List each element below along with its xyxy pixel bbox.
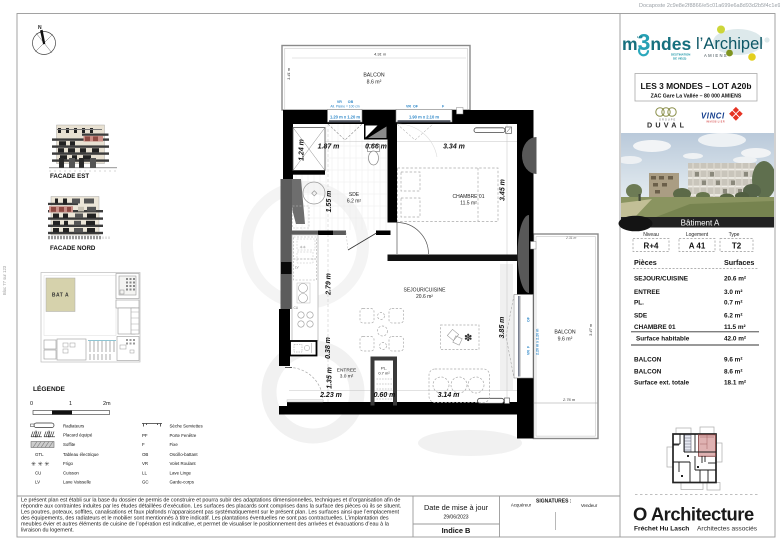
svg-text:N: N [38,25,42,31]
svg-text:20.6 m²: 20.6 m² [724,276,746,283]
svg-text:1.20 m x 1.20 m: 1.20 m x 1.20 m [330,115,360,120]
svg-text:3.34 m: 3.34 m [443,144,465,151]
svg-text:CHAMBRE 01: CHAMBRE 01 [634,324,676,331]
svg-text:9.6 m²: 9.6 m² [558,337,573,343]
svg-text:0: 0 [30,401,33,407]
svg-text:LL: LL [142,471,147,476]
svg-text:FACADE EST: FACADE EST [50,173,89,180]
svg-text:meubles évier et autres élémen: meubles évier et autres éléments de cuis… [21,522,390,528]
svg-text:3.0 m²: 3.0 m² [340,374,354,380]
svg-text:BALCON: BALCON [363,73,385,79]
svg-text:T2: T2 [732,242,742,251]
svg-text:SDE: SDE [349,192,360,198]
svg-text:2.31 m: 2.31 m [565,236,577,240]
svg-text:AMIENS: AMIENS [704,53,728,58]
svg-text:0.60 m: 0.60 m [374,392,396,399]
svg-text:3.45 m: 3.45 m [500,179,507,201]
svg-text:Radiateurs: Radiateurs [63,424,85,429]
svg-text:Oscillo-battant: Oscillo-battant [170,452,199,457]
svg-text:Type: Type [729,232,740,238]
svg-text:BALCON: BALCON [554,330,576,336]
svg-text:3.14 m: 3.14 m [438,392,460,399]
svg-text:VR F: VR F [527,345,531,355]
svg-text:ZAC Gare La Vallée – 80 000 AM: ZAC Gare La Vallée – 80 000 AMIENS [651,94,742,100]
svg-text:Volet Roulant: Volet Roulant [170,461,197,466]
svg-text:A 41: A 41 [689,242,706,251]
svg-text:Lave Linge: Lave Linge [170,471,192,476]
svg-text:VR OF: VR OF [406,105,419,109]
svg-text:Vendeur: Vendeur [581,503,598,508]
svg-text:LES 3 MONDES – LOT A20b: LES 3 MONDES – LOT A20b [641,81,752,91]
svg-text:1.24 m: 1.24 m [299,139,306,161]
svg-text:VINCI: VINCI [701,112,725,121]
svg-text:DUVAL: DUVAL [647,121,687,130]
svg-text:VR: VR [142,461,148,466]
svg-text:Porte Fenêtre: Porte Fenêtre [170,433,197,438]
svg-text:6.2 m²: 6.2 m² [347,199,362,205]
svg-text:20.6 m²: 20.6 m² [416,294,433,300]
svg-text:Surface habitable: Surface habitable [636,336,690,343]
svg-text:Soffite: Soffite [63,442,76,447]
svg-text:0.7 m²: 0.7 m² [724,300,742,307]
svg-text:Cuisson: Cuisson [63,471,79,476]
svg-text:ENTREE: ENTREE [337,368,356,374]
svg-text:0.66 m: 0.66 m [365,144,387,151]
svg-text:ENTREE: ENTREE [634,289,661,296]
svg-text:Pièces: Pièces [634,258,657,267]
svg-text:OF: OF [527,316,531,322]
svg-text:Bâtiment A: Bâtiment A [681,219,720,228]
svg-text:IMMOBILIER: IMMOBILIER [706,121,725,124]
svg-text:FACADE NORD: FACADE NORD [50,245,96,252]
svg-text:✳ ✳ ✳: ✳ ✳ ✳ [31,461,49,468]
svg-text:0.38 m: 0.38 m [325,337,332,359]
svg-text:Fixe: Fixe [170,442,179,447]
svg-text:Indice B: Indice B [442,526,471,535]
svg-text:CHAMBRE 01: CHAMBRE 01 [453,194,485,200]
svg-text:2.20 m x 2.20 m: 2.20 m x 2.20 m [536,329,540,355]
svg-text:✳✳: ✳✳ [300,246,307,250]
svg-text:SEJOUR/CUISINE: SEJOUR/CUISINE [634,276,689,283]
svg-text:Docaposte 2c9e8e2f8866/e5c01a6: Docaposte 2c9e8e2f8866/e5c01a699e6a8d93d… [639,3,780,9]
svg-text:BAT A: BAT A [52,293,69,299]
svg-text:0.7 m²: 0.7 m² [378,371,390,376]
svg-text:8.6 m²: 8.6 m² [724,369,742,376]
svg-text:O Architecture: O Architecture [633,504,754,525]
svg-text:LÉGENDE: LÉGENDE [33,384,65,393]
svg-text:CU: CU [294,306,299,310]
svg-text:6.2 m²: 6.2 m² [724,313,742,320]
svg-text:All. Pleine = 100 cm: All. Pleine = 100 cm [330,105,359,109]
svg-text:Architectes associés: Architectes associés [697,526,758,533]
svg-text:R+4: R+4 [644,242,659,251]
svg-text:1.41 m: 1.41 m [286,67,291,80]
svg-text:DE VIE(S): DE VIE(S) [673,57,686,61]
svg-text:SEJOUR/CUISINE: SEJOUR/CUISINE [404,288,447,294]
svg-text:LV: LV [35,480,40,485]
svg-text:✽: ✽ [464,333,472,344]
svg-text:OB: OB [142,452,148,457]
svg-text:PF: PF [142,433,148,438]
svg-text:9.6 m²: 9.6 m² [724,357,742,364]
svg-text:Fréchet Hu Lasch: Fréchet Hu Lasch [634,526,689,533]
svg-text:Lave Vaisselle: Lave Vaisselle [63,480,92,485]
svg-text:Garde-corps: Garde-corps [170,480,195,485]
svg-text:Surface ext. totale: Surface ext. totale [634,380,689,387]
svg-text:4.91 m: 4.91 m [374,52,387,57]
svg-text:LES: LES [637,35,643,39]
svg-text:PL.: PL. [634,300,644,307]
svg-text:SDE: SDE [634,313,648,320]
svg-text:1: 1 [69,401,72,407]
svg-text:GC: GC [142,480,149,485]
svg-text:1.90 m x 2.10 m: 1.90 m x 2.10 m [409,115,439,120]
svg-text:18.1 m²: 18.1 m² [724,380,746,387]
svg-text:1.55 m: 1.55 m [326,191,333,213]
svg-text:42.0 m²: 42.0 m² [724,336,746,343]
svg-text:2.79 m: 2.79 m [326,273,333,296]
svg-text:Sèche Serviettes: Sèche Serviettes [170,424,204,429]
svg-text:3.0 m²: 3.0 m² [724,289,742,296]
svg-text:11.5 m²: 11.5 m² [724,324,746,331]
svg-text:Frigo: Frigo [63,461,74,466]
svg-text:Date de mise à jour: Date de mise à jour [424,503,489,512]
svg-text:2.23 m: 2.23 m [319,392,342,399]
svg-text:2m: 2m [103,401,111,407]
svg-text:1.87 m: 1.87 m [318,144,340,151]
svg-text:F: F [142,442,145,447]
svg-text:3.47 m: 3.47 m [588,323,593,336]
svg-text:livraison du logement.: livraison du logement. [21,528,74,534]
svg-text:VR OB: VR OB [337,100,354,104]
svg-text:Bloc 77 sur 123: Bloc 77 sur 123 [2,265,7,295]
svg-text:29/06/2023: 29/06/2023 [443,515,468,521]
svg-text:Surfaces: Surfaces [724,258,754,267]
svg-text:Placard équipé: Placard équipé [63,433,93,438]
svg-text:Tableau électrique: Tableau électrique [63,452,99,457]
svg-text:Logement: Logement [686,232,709,238]
svg-text:11.5 m²: 11.5 m² [460,201,477,207]
svg-text:Acquéreur: Acquéreur [511,503,532,508]
svg-text:CU: CU [35,471,41,476]
svg-text:2.76 m: 2.76 m [562,397,576,402]
svg-text:BALCON: BALCON [634,369,662,376]
svg-text:BALCON: BALCON [634,357,662,364]
svg-text:GTL: GTL [35,452,44,457]
svg-text:SIGNATURES :: SIGNATURES : [536,499,572,505]
svg-text:1.35 m: 1.35 m [327,367,334,389]
svg-text:8.6 m²: 8.6 m² [367,80,382,86]
svg-text:3.85 m: 3.85 m [499,317,506,339]
svg-text:Niveau: Niveau [643,232,659,238]
